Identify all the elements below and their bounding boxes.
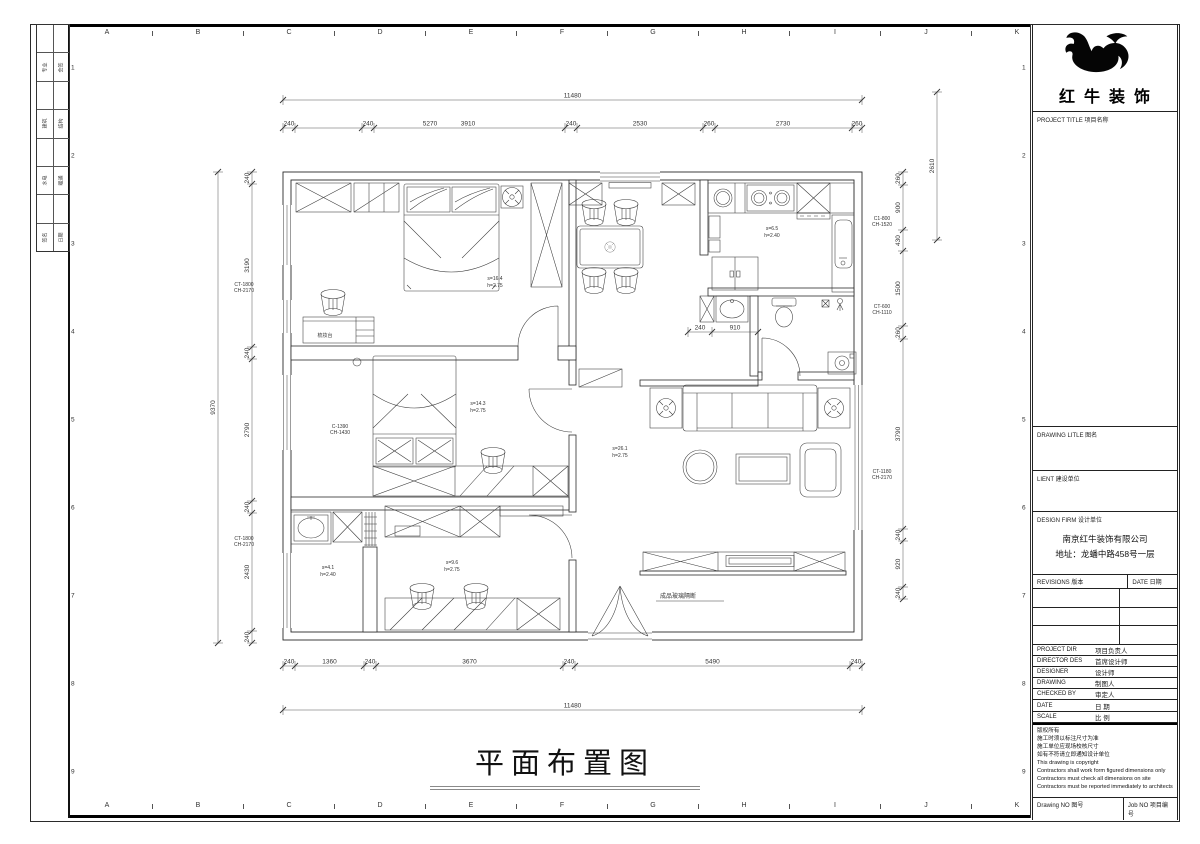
ceiling-fan-master	[501, 186, 523, 208]
armchair	[800, 443, 841, 497]
plan-dim-label: 240	[244, 347, 251, 358]
plan-annotation: s=16.4	[487, 276, 502, 282]
signature-cell: 暖通	[54, 167, 70, 194]
plan-dim-label: 260	[704, 121, 715, 128]
signature-row	[37, 139, 69, 167]
wardrobe-master-right	[531, 183, 562, 287]
signature-cell	[37, 25, 54, 52]
study-desk-band	[385, 506, 563, 537]
wall-pier-boxes	[569, 183, 695, 205]
client-label: LIENT 建设单位	[1033, 471, 1177, 483]
plan-dim-label: 240	[244, 501, 251, 512]
signature-cell	[37, 195, 54, 222]
bath2-sink	[291, 512, 331, 544]
footer-section: Drawing NO 图号 Job NO 项目编号	[1033, 798, 1177, 820]
kitchen-cabinet	[712, 257, 758, 290]
signature-row	[37, 195, 69, 223]
plan-annotation: s=26.1	[612, 446, 627, 452]
drawing-title-text: 平面布置图	[430, 740, 700, 782]
bath2-shower	[333, 512, 362, 542]
wardrobe-master-top	[296, 183, 399, 212]
stool-bedroom2	[481, 448, 505, 474]
plan-dim-label: 240	[363, 121, 374, 128]
bed-master	[404, 184, 499, 291]
stool-study-1	[410, 584, 434, 610]
signature-row	[37, 25, 69, 53]
threshold-bath2	[364, 512, 377, 546]
signature-cell	[54, 82, 70, 109]
kitchen-sink-right	[832, 215, 854, 292]
signature-cell: 专业	[37, 53, 54, 80]
plan-annotation: h=2.75	[487, 283, 503, 289]
plan-annotation: CH-1430	[330, 430, 350, 436]
design-firm-label: DESIGN FIRM 设计单位	[1033, 512, 1177, 524]
plan-dim-label: 240	[284, 121, 295, 128]
plan-dim-label: 3910	[461, 121, 476, 128]
window-left-master	[282, 205, 293, 265]
plan-dim-label: 260	[895, 173, 902, 184]
signature-cell: 日期	[54, 224, 70, 251]
plan-dim-label: 9370	[210, 400, 217, 415]
door-bath1	[762, 338, 800, 376]
titleblock-field-row: DIRECTOR DES首席设计师	[1033, 656, 1177, 667]
signature-row: 水电暖通	[37, 167, 69, 195]
titleblock-field-row: SCALE比 例	[1033, 712, 1177, 722]
signature-cell	[37, 139, 54, 166]
client-section: LIENT 建设单位	[1033, 471, 1177, 513]
plan-dim-label: 910	[730, 325, 741, 332]
plan-annotation: s=9.6	[446, 560, 459, 566]
plan-dim-label: 430	[895, 235, 902, 246]
plan-dim-label: 240	[566, 121, 577, 128]
plan-dim-label: 3670	[462, 659, 477, 666]
plan-dim-label: 3790	[895, 426, 902, 441]
plan-dim-label: 240	[564, 659, 575, 666]
plan-dim-label: 1360	[322, 659, 337, 666]
copyright-line: Contractors must be reported immediately…	[1037, 783, 1173, 791]
signature-row: 建筑结构	[37, 110, 69, 138]
signature-cell	[54, 139, 70, 166]
floor-plan-canvas: 1148024024052703910240253026027302602401…	[68, 24, 1030, 808]
annotation-layer: s=16.4h=2.75s=14.3h=2.75s=26.1h=2.75s=9.…	[234, 216, 892, 600]
drawing-title: 平面布置图	[430, 740, 700, 790]
title-underline-1	[430, 786, 700, 787]
plan-annotation: h=2.75	[612, 453, 628, 459]
plan-dim-label: 900	[895, 202, 902, 213]
plan-dim-label: 240	[695, 325, 706, 332]
job-no-label: Job NO 项目编号	[1124, 798, 1177, 820]
plan-dim-label: 260	[895, 327, 902, 338]
firm-address: 地址：龙蟠中路458号一层	[1033, 547, 1177, 561]
plan-dim-label: 2610	[929, 158, 936, 173]
round-coffee-table	[683, 450, 717, 484]
signature-strip: 专业会签建筑结构水电暖通签名日期	[36, 24, 70, 252]
copyright-line: 施工单位应现场校核尺寸	[1037, 743, 1173, 751]
hall-wash-basin	[700, 296, 748, 322]
plan-dim-label: 11480	[564, 93, 582, 100]
dressing-table	[303, 290, 374, 344]
design-firm-section: DESIGN FIRM 设计单位 南京红牛装饰有限公司 地址：龙蟠中路458号一…	[1033, 512, 1177, 575]
bull-logo-icon	[1057, 29, 1153, 81]
titleblock-field-row: DATE日 期	[1033, 700, 1177, 711]
revisions-label: REVISIONS 版本	[1033, 575, 1128, 588]
plan-dim-label: 2430	[244, 564, 251, 579]
copyright-line: Contractors shall work form figured dime…	[1037, 767, 1173, 775]
revision-row	[1033, 626, 1177, 644]
plan-dim-label: 240	[895, 587, 902, 598]
plan-dim-label: 240	[851, 659, 862, 666]
dining-table	[577, 200, 643, 294]
copyright-line: This drawing is copyright	[1037, 759, 1173, 767]
revision-row	[1033, 589, 1177, 608]
tv-icon	[726, 556, 794, 567]
coffee-table	[736, 454, 790, 484]
revision-row	[1033, 608, 1177, 627]
plan-dim-label: 260	[852, 121, 863, 128]
signature-row: 签名日期	[37, 224, 69, 251]
plan-annotation: s=4.1	[322, 565, 335, 571]
copyright-line: 如有不符请立即通知设计单位	[1037, 751, 1173, 759]
plan-dim-label: 240	[895, 529, 902, 540]
plan-dim-label: 1500	[895, 281, 902, 296]
plan-dim-label: 2530	[633, 121, 648, 128]
plan-annotation: 梳妆台	[317, 332, 332, 339]
signature-cell	[37, 82, 54, 109]
plan-dim-label: 240	[284, 659, 295, 666]
plan-annotation: h=2.75	[470, 408, 486, 414]
company-logo-text: 红牛装饰	[1059, 83, 1159, 107]
drawing-title-section: DRAWING LITLE 图名	[1033, 427, 1177, 471]
plan-dim-label: 240	[365, 659, 376, 666]
project-title-label: PROJECT TITLE 项目名称	[1033, 112, 1177, 124]
titleblock-field-row: DRAWING制图人	[1033, 678, 1177, 689]
plan-dim-label: 11480	[564, 703, 582, 710]
title-underline-2	[430, 789, 700, 790]
plan-dim-label: 2730	[776, 121, 791, 128]
plan-dim-label: 3190	[244, 258, 251, 273]
copyright-section: 版权所有施工时须以标注尺寸为准施工单位应现场校核尺寸如有不符请立即通知设计单位T…	[1033, 725, 1177, 798]
titleblock-field-row: PROJECT DIR项目负责人	[1033, 645, 1177, 656]
plan-annotation: h=2.40	[320, 572, 336, 578]
plan-dim-label: 920	[895, 558, 902, 569]
project-title-section: PROJECT TITLE 项目名称	[1033, 112, 1177, 427]
tv-cabinet	[643, 552, 845, 571]
firm-name: 南京红牛装饰有限公司	[1033, 532, 1177, 546]
entry-door	[588, 586, 652, 642]
plan-annotation: CH-2170	[872, 475, 892, 481]
logo-section: 红牛装饰	[1033, 24, 1177, 112]
plan-annotation: h=2.40	[764, 233, 780, 239]
bedroom2-desk-band	[373, 466, 568, 496]
window-top-dining	[600, 172, 660, 189]
plan-annotation: s=14.3	[470, 401, 485, 407]
plan-annotation: CH-2170	[234, 542, 254, 548]
door-master	[518, 306, 558, 346]
fields-section: PROJECT DIR项目负责人DIRECTOR DES首席设计师DESIGNE…	[1033, 645, 1177, 722]
plan-dim-label: 5490	[705, 659, 720, 666]
plan-annotation: 成品玻璃隔断	[660, 592, 696, 600]
stool-study-2	[464, 584, 488, 610]
drawing-sheet: AABBCCDDEEFFGGHHIIJJKK112233445566778899…	[0, 0, 1200, 844]
frame-right-bar	[1030, 24, 1031, 818]
signature-cell: 结构	[54, 110, 70, 137]
window-right-living	[854, 385, 865, 530]
titleblock-field-row: CHECKED BY审定人	[1033, 689, 1177, 700]
frame-bottom-bar	[68, 815, 1030, 818]
sofa	[683, 385, 817, 431]
plan-annotation: CH-2170	[234, 288, 254, 294]
signature-cell	[54, 25, 70, 52]
signature-cell: 签名	[37, 224, 54, 251]
washing-machine-icon	[828, 352, 856, 374]
plan-dim-label: 5270	[423, 121, 438, 128]
signature-cell	[54, 195, 70, 222]
window-left-bedroom2	[282, 375, 293, 450]
plan-annotation: CH-1520	[872, 222, 892, 228]
plan-dim-label: 240	[244, 631, 251, 642]
drawing-title-label: DRAWING LITLE 图名	[1033, 427, 1177, 439]
copyright-line: 版权所有	[1037, 727, 1173, 735]
plan-annotation: CH-1110	[872, 310, 891, 316]
signature-row	[37, 82, 69, 110]
plan-annotation: h=2.75	[444, 567, 460, 573]
revisions-date-label: DATE 日期	[1128, 575, 1177, 588]
revisions-section: REVISIONS 版本 DATE 日期	[1033, 575, 1177, 645]
signature-cell: 水电	[37, 167, 54, 194]
shower-head-icon	[822, 299, 843, 312]
copyright-line: 施工时须以标注尺寸为准	[1037, 735, 1173, 743]
door-study	[529, 515, 572, 558]
bed-bedroom2	[373, 356, 456, 467]
side-table-right	[818, 388, 850, 428]
toilet-icon	[772, 298, 796, 327]
plan-dim-label: 2790	[244, 422, 251, 437]
titleblock-field-row: DESIGNER设计师	[1033, 667, 1177, 678]
title-block: 红牛装饰 PROJECT TITLE 项目名称 DRAWING LITLE 图名…	[1032, 24, 1178, 820]
door-bedroom2	[529, 389, 572, 432]
signature-row: 专业会签	[37, 53, 69, 81]
copyright-line: Contractors must check all dimensions on…	[1037, 775, 1173, 783]
entry-cabinet	[579, 369, 622, 387]
drawing-no-label: Drawing NO 图号	[1033, 798, 1124, 820]
signature-cell: 会签	[54, 53, 70, 80]
window-left-bath2	[282, 553, 293, 628]
plan-dim-label: 240	[244, 172, 251, 183]
signature-cell: 建筑	[37, 110, 54, 137]
plan-annotation: s=6.5	[766, 226, 779, 232]
side-table-left	[650, 388, 682, 428]
window-left-master2	[282, 300, 293, 333]
